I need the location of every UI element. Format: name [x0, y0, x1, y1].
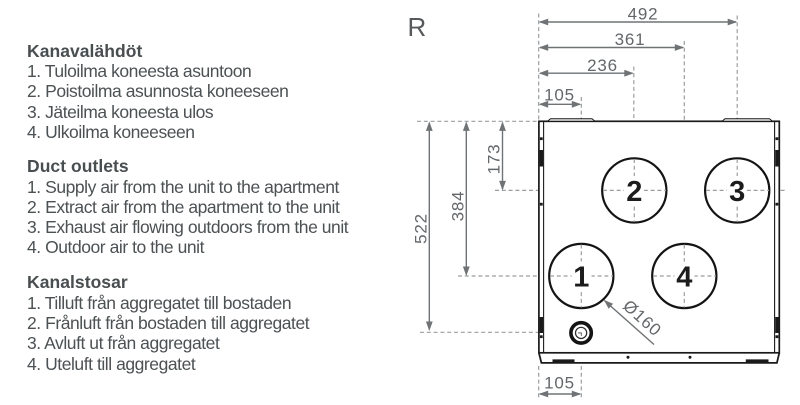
svg-text:361: 361 — [615, 30, 646, 49]
svg-text:384: 384 — [449, 191, 468, 222]
svg-text:2: 2 — [626, 176, 642, 208]
svg-text:R: R — [408, 12, 427, 42]
svg-text:105: 105 — [544, 373, 575, 392]
svg-text:3: 3 — [729, 176, 745, 208]
svg-text:105: 105 — [544, 86, 575, 105]
svg-text:236: 236 — [587, 56, 618, 75]
svg-text:522: 522 — [411, 213, 430, 244]
svg-text:173: 173 — [484, 144, 503, 175]
svg-text:492: 492 — [628, 5, 659, 24]
svg-text:1: 1 — [573, 262, 589, 294]
svg-text:4: 4 — [676, 262, 692, 294]
